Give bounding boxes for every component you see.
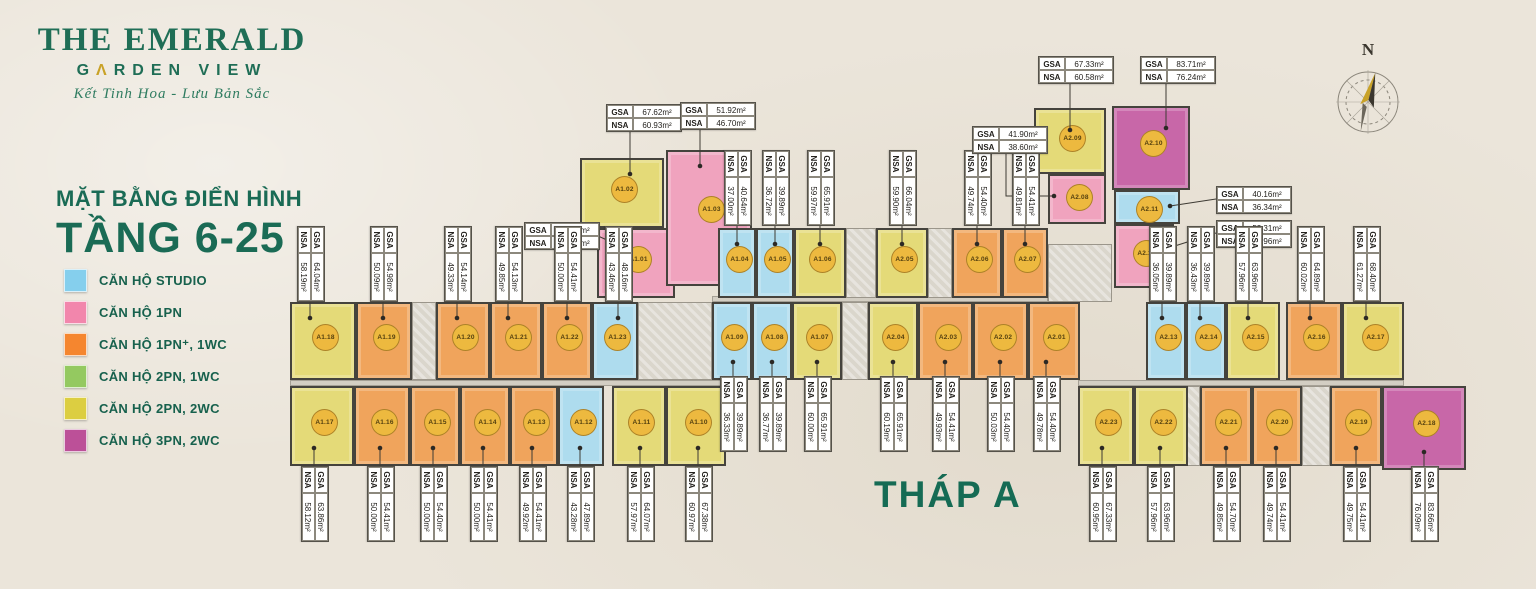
unit-a1-13[interactable]: A1.13: [510, 386, 558, 466]
service-core: [846, 228, 876, 298]
unit-badge: A2.17: [1362, 324, 1389, 351]
unit-a2-23[interactable]: A2.23: [1078, 386, 1134, 466]
unit-a1-21[interactable]: A1.21: [490, 302, 542, 380]
unit-a2-15[interactable]: A2.15: [1226, 302, 1280, 380]
unit-a2-01[interactable]: A2.01: [1028, 302, 1080, 380]
service-core: [1048, 244, 1112, 302]
unit-badge: A1.17: [311, 409, 338, 436]
unit-a2-11[interactable]: A2.11: [1114, 190, 1180, 224]
unit-a2-08[interactable]: A2.08: [1048, 174, 1106, 224]
unit-a1-06[interactable]: A1.06: [794, 228, 846, 298]
unit-badge: A1.21: [505, 324, 532, 351]
unit-a1-16[interactable]: A1.16: [354, 386, 410, 466]
plan-layer: A1.01A1.02A1.03A1.04A1.05A1.06A1.07A1.08…: [0, 0, 1536, 589]
unit-badge: A1.07: [806, 324, 833, 351]
unit-badge: A1.13: [523, 409, 550, 436]
unit-badge: A2.12: [1133, 240, 1160, 267]
unit-badge: A1.04: [726, 246, 753, 273]
unit-badge: A2.07: [1014, 246, 1041, 273]
unit-badge: A1.11: [628, 409, 655, 436]
unit-badge: A2.23: [1095, 409, 1122, 436]
unit-badge: A1.22: [556, 324, 583, 351]
service-core: [412, 302, 436, 380]
unit-a2-19[interactable]: A2.19: [1330, 386, 1382, 466]
unit-a2-05[interactable]: A2.05: [876, 228, 928, 298]
unit-badge: A1.12: [570, 409, 597, 436]
service-core: [928, 228, 952, 298]
unit-a1-11[interactable]: A1.11: [612, 386, 666, 466]
unit-a1-07[interactable]: A1.07: [792, 302, 842, 380]
unit-a1-20[interactable]: A1.20: [436, 302, 490, 380]
unit-badge: A1.08: [761, 324, 788, 351]
unit-badge: A2.10: [1140, 130, 1167, 157]
unit-a1-22[interactable]: A1.22: [542, 302, 592, 380]
unit-badge: A2.13: [1155, 324, 1182, 351]
service-core: [1302, 386, 1330, 466]
unit-badge: A2.03: [935, 324, 962, 351]
unit-badge: A1.10: [685, 409, 712, 436]
unit-badge: A2.21: [1215, 409, 1242, 436]
unit-badge: A2.02: [990, 324, 1017, 351]
unit-a2-06[interactable]: A2.06: [952, 228, 1002, 298]
unit-a1-23[interactable]: A1.23: [592, 302, 638, 380]
unit-badge: A2.08: [1066, 184, 1093, 211]
unit-badge: A2.06: [966, 246, 993, 273]
unit-badge: A2.05: [891, 246, 918, 273]
unit-a1-17[interactable]: A1.17: [290, 386, 354, 466]
unit-a1-08[interactable]: A1.08: [752, 302, 792, 380]
unit-badge: A2.19: [1345, 409, 1372, 436]
unit-a1-12[interactable]: A1.12: [558, 386, 604, 466]
unit-badge: A1.02: [611, 176, 638, 203]
unit-badge: A2.20: [1266, 409, 1293, 436]
unit-badge: A1.18: [312, 324, 339, 351]
unit-a2-21[interactable]: A2.21: [1200, 386, 1252, 466]
unit-badge: A1.01: [625, 246, 652, 273]
service-core: [842, 302, 868, 380]
unit-badge: A2.11: [1136, 196, 1163, 223]
unit-a2-18[interactable]: A2.18: [1382, 386, 1466, 470]
unit-badge: A2.14: [1195, 324, 1222, 351]
unit-a2-07[interactable]: A2.07: [1002, 228, 1048, 298]
unit-badge: A2.01: [1043, 324, 1070, 351]
unit-badge: A1.23: [604, 324, 631, 351]
unit-badge: A2.15: [1242, 324, 1269, 351]
unit-a2-03[interactable]: A2.03: [918, 302, 973, 380]
unit-badge: A1.09: [721, 324, 748, 351]
unit-badge: A1.05: [764, 246, 791, 273]
unit-a1-19[interactable]: A1.19: [356, 302, 412, 380]
unit-a1-14[interactable]: A1.14: [460, 386, 510, 466]
unit-a2-14[interactable]: A2.14: [1186, 302, 1226, 380]
unit-a2-12[interactable]: A2.12: [1114, 224, 1174, 288]
unit-a2-04[interactable]: A2.04: [868, 302, 918, 380]
unit-a2-10[interactable]: A2.10: [1112, 106, 1190, 190]
unit-a2-16[interactable]: A2.16: [1286, 302, 1342, 380]
unit-a2-13[interactable]: A2.13: [1146, 302, 1186, 380]
unit-a1-09[interactable]: A1.09: [712, 302, 752, 380]
service-core: [638, 302, 712, 380]
unit-badge: A1.06: [809, 246, 836, 273]
unit-a2-02[interactable]: A2.02: [973, 302, 1028, 380]
unit-a2-22[interactable]: A2.22: [1134, 386, 1188, 466]
unit-badge: A1.20: [452, 324, 479, 351]
unit-badge: A2.04: [882, 324, 909, 351]
unit-badge: A1.15: [424, 409, 451, 436]
unit-a1-05[interactable]: A1.05: [756, 228, 794, 298]
unit-a1-10[interactable]: A1.10: [666, 386, 726, 466]
unit-a2-17[interactable]: A2.17: [1342, 302, 1404, 380]
unit-badge: A1.19: [373, 324, 400, 351]
unit-a2-09[interactable]: A2.09: [1034, 108, 1106, 174]
unit-a1-01[interactable]: A1.01: [597, 228, 675, 298]
unit-a1-15[interactable]: A1.15: [410, 386, 460, 466]
unit-badge: A1.14: [474, 409, 501, 436]
floorplan-canvas: THE EMERALD GΛRDEN VIEW Kết Tinh Hoa - L…: [0, 0, 1536, 589]
unit-badge: A2.18: [1413, 410, 1440, 437]
unit-a1-18[interactable]: A1.18: [290, 302, 356, 380]
unit-badge: A1.16: [371, 409, 398, 436]
service-core: [1186, 386, 1200, 466]
unit-badge: A2.22: [1150, 409, 1177, 436]
unit-badge: A2.09: [1059, 125, 1086, 152]
unit-a1-02[interactable]: A1.02: [580, 158, 664, 228]
unit-a2-20[interactable]: A2.20: [1252, 386, 1302, 466]
unit-badge: A1.03: [698, 196, 725, 223]
unit-a1-04[interactable]: A1.04: [718, 228, 756, 298]
unit-badge: A2.16: [1303, 324, 1330, 351]
